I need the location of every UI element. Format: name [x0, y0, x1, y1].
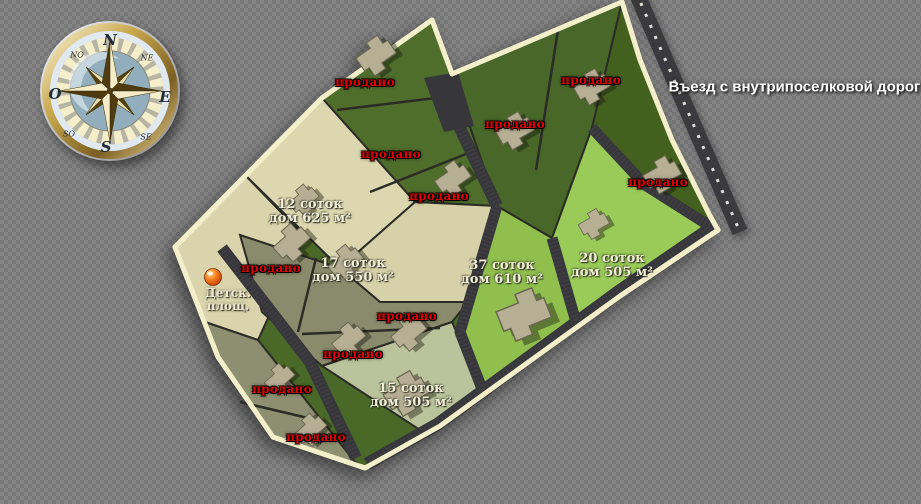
site-plan-image: продано продано продано продано продано …: [0, 0, 921, 504]
plot-area: 12 соток: [269, 198, 351, 212]
sold-badge: продано: [485, 117, 545, 131]
plot-house-size: дом 550 м²: [312, 271, 394, 285]
plot-house-size: дом 505 м²: [571, 266, 653, 280]
plot-label-15[interactable]: 15 соток дом 505 м²: [370, 382, 452, 410]
compass-east-label: E: [159, 88, 170, 106]
plot-house-size: дом 625 м²: [269, 212, 351, 226]
compass-southeast-label: SE: [140, 133, 151, 142]
plot-house-size: дом 610 м²: [461, 273, 543, 287]
compass-west-label: O: [48, 85, 61, 103]
playground-marker-icon: [205, 269, 222, 286]
entrance-road-label: Въезд с внутрипоселковой дороги: [668, 79, 921, 96]
plot-area: 15 соток: [370, 382, 452, 396]
sold-badge: продано: [561, 73, 621, 87]
master-plan-map: [0, 0, 921, 504]
plot-house-size: дом 505 м²: [370, 396, 452, 410]
sold-badge: продано: [361, 147, 421, 161]
compass-south-label: S: [101, 138, 112, 156]
playground-label: Детск. площ.: [205, 287, 251, 313]
plot-label-37[interactable]: 37 соток дом 610 м²: [461, 259, 543, 287]
compass-northwest-label: NO: [70, 51, 84, 60]
plot-area: 20 соток: [571, 252, 653, 266]
sold-badge: продано: [286, 430, 346, 444]
sold-badge: продано: [241, 261, 301, 275]
plot-area: 37 соток: [461, 259, 543, 273]
plot-label-17[interactable]: 17 соток дом 550 м²: [312, 257, 394, 285]
sold-badge: продано: [252, 382, 312, 396]
plot-label-20[interactable]: 20 соток дом 505 м²: [571, 252, 653, 280]
sold-badge: продано: [323, 347, 383, 361]
sold-badge: продано: [335, 75, 395, 89]
compass-southwest-label: SO: [63, 130, 75, 139]
compass-northeast-label: NE: [141, 54, 154, 63]
sold-badge: продано: [628, 175, 688, 189]
sold-badge: продано: [377, 309, 437, 323]
sold-badge: продано: [409, 189, 469, 203]
compass-north-label: N: [103, 31, 117, 49]
plot-area: 17 соток: [312, 257, 394, 271]
plot-label-12[interactable]: 12 соток дом 625 м²: [269, 198, 351, 226]
